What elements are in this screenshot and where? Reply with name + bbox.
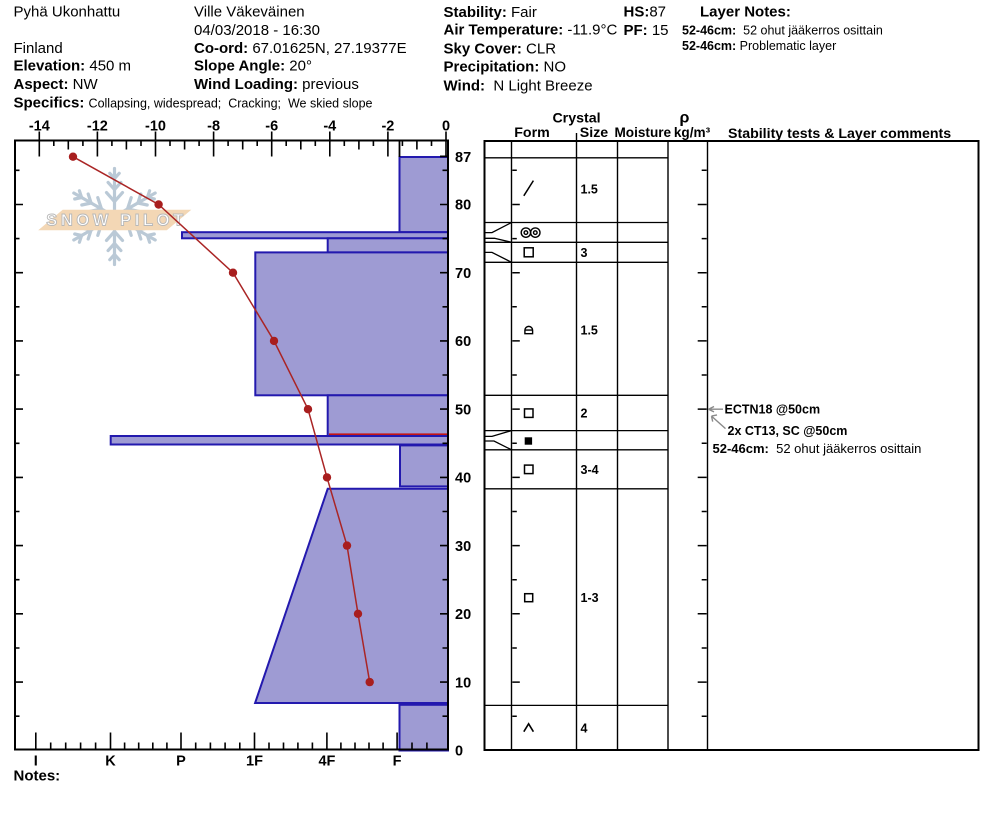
svg-text:Layer Notes:: Layer Notes: bbox=[700, 4, 791, 21]
svg-text:87: 87 bbox=[455, 150, 471, 166]
svg-text:-6: -6 bbox=[265, 119, 278, 135]
svg-text:Moisture: Moisture bbox=[614, 125, 671, 140]
svg-text:4: 4 bbox=[581, 721, 588, 735]
svg-text:2: 2 bbox=[581, 407, 588, 421]
svg-text:HS:87: HS:87 bbox=[624, 4, 667, 21]
svg-text:Stability: Fair: Stability: Fair bbox=[444, 4, 537, 21]
svg-text:ρ: ρ bbox=[680, 109, 690, 126]
svg-text:Notes:: Notes: bbox=[14, 768, 61, 785]
svg-text:-8: -8 bbox=[207, 119, 220, 135]
svg-text:K: K bbox=[105, 754, 116, 770]
svg-text:1.5: 1.5 bbox=[581, 323, 598, 337]
svg-text:kg/m³: kg/m³ bbox=[674, 125, 711, 140]
svg-text:Ville Väkeväinen: Ville Väkeväinen bbox=[194, 4, 305, 21]
svg-text:Size: Size bbox=[580, 125, 608, 141]
svg-text:52-46cm: 52 ohut jääkerros os: 52-46cm: 52 ohut jääkerros osittain bbox=[713, 441, 922, 456]
svg-text:04/03/2018 - 16:30: 04/03/2018 - 16:30 bbox=[194, 22, 320, 39]
svg-text:-12: -12 bbox=[87, 119, 108, 135]
svg-text:10: 10 bbox=[455, 675, 471, 691]
svg-text:Precipitation: NO: Precipitation: NO bbox=[444, 59, 567, 76]
svg-text:-14: -14 bbox=[29, 119, 50, 135]
svg-text:Slope Angle: 20°: Slope Angle: 20° bbox=[194, 57, 312, 74]
svg-text:-2: -2 bbox=[381, 119, 394, 135]
svg-text:P: P bbox=[176, 754, 186, 770]
svg-text:1-3: 1-3 bbox=[581, 591, 599, 605]
svg-text:52-46cm: 52 ohut jääkerros os: 52-46cm: 52 ohut jääkerros osittain bbox=[682, 24, 883, 38]
svg-text:40: 40 bbox=[455, 471, 471, 487]
svg-text:Aspect: NW: Aspect: NW bbox=[14, 76, 99, 93]
svg-text:60: 60 bbox=[455, 334, 471, 350]
svg-text:Sky Cover: CLR: Sky Cover: CLR bbox=[444, 40, 557, 57]
svg-text:52-46cm: Problematic layer: 52-46cm: Problematic layer bbox=[682, 39, 836, 53]
svg-text:Wind: N Light Breeze: Wind: N Light Breeze bbox=[444, 77, 593, 94]
svg-text:1.5: 1.5 bbox=[581, 182, 598, 196]
svg-text:Stability tests & Layer commen: Stability tests & Layer comments bbox=[728, 126, 951, 142]
svg-text:20: 20 bbox=[455, 607, 471, 623]
svg-text:-4: -4 bbox=[323, 119, 336, 135]
svg-text:0: 0 bbox=[455, 744, 463, 760]
svg-text:Form: Form bbox=[514, 125, 549, 141]
svg-text:2x CT13, SC @50cm: 2x CT13, SC @50cm bbox=[728, 424, 848, 438]
svg-text:Elevation: 450 m: Elevation: 450 m bbox=[14, 57, 132, 74]
svg-text:PF: 15: PF: 15 bbox=[624, 22, 669, 39]
svg-text:3: 3 bbox=[581, 246, 588, 260]
svg-text:3-4: 3-4 bbox=[581, 463, 599, 477]
svg-text:80: 80 bbox=[455, 198, 471, 214]
svg-text:Specifics: Collapsing, widespr: Specifics: Collapsing, widespread; Crack… bbox=[14, 94, 373, 111]
svg-text:SNOW PILOT: SNOW PILOT bbox=[46, 212, 187, 230]
svg-text:50: 50 bbox=[455, 402, 471, 418]
svg-text:Wind Loading: previous: Wind Loading: previous bbox=[194, 76, 359, 93]
svg-text:ECTN18 @50cm: ECTN18 @50cm bbox=[725, 403, 821, 417]
svg-text:Finland: Finland bbox=[14, 40, 63, 57]
svg-text:Co-ord: 67.01625N, 27.19377E: Co-ord: 67.01625N, 27.19377E bbox=[194, 40, 407, 57]
svg-text:Pyhä Ukonhattu: Pyhä Ukonhattu bbox=[14, 4, 121, 21]
svg-text:30: 30 bbox=[455, 539, 471, 555]
svg-text:0: 0 bbox=[442, 119, 450, 135]
svg-text:1F: 1F bbox=[246, 754, 263, 770]
svg-text:F: F bbox=[393, 754, 402, 770]
svg-text:-10: -10 bbox=[145, 119, 166, 135]
svg-text:70: 70 bbox=[455, 266, 471, 282]
svg-text:Air Temperature: -11.9°C: Air Temperature: -11.9°C bbox=[444, 22, 618, 39]
svg-text:4F: 4F bbox=[318, 754, 335, 770]
